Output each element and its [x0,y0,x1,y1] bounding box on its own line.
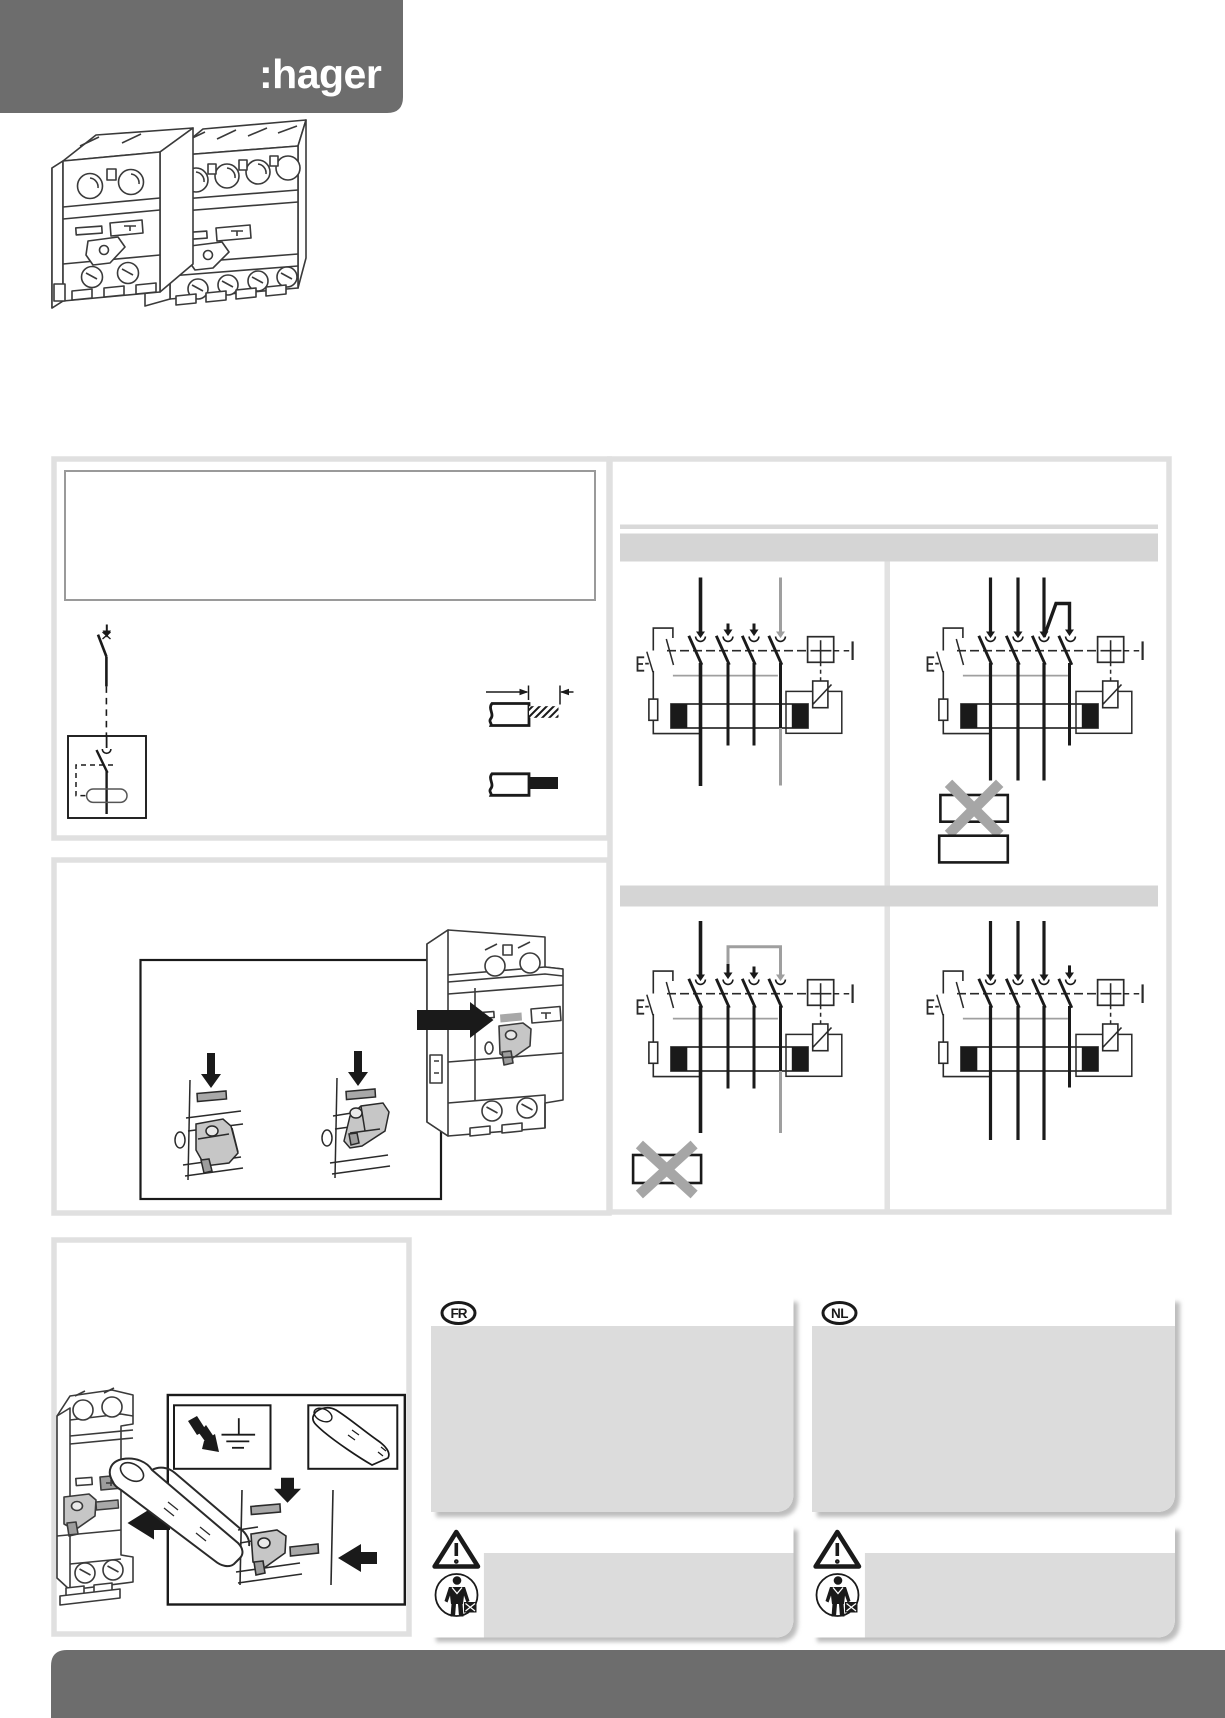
svg-text:NL: NL [831,1306,848,1321]
svg-text:FR: FR [451,1306,468,1321]
svg-text::hager: :hager [259,51,382,97]
